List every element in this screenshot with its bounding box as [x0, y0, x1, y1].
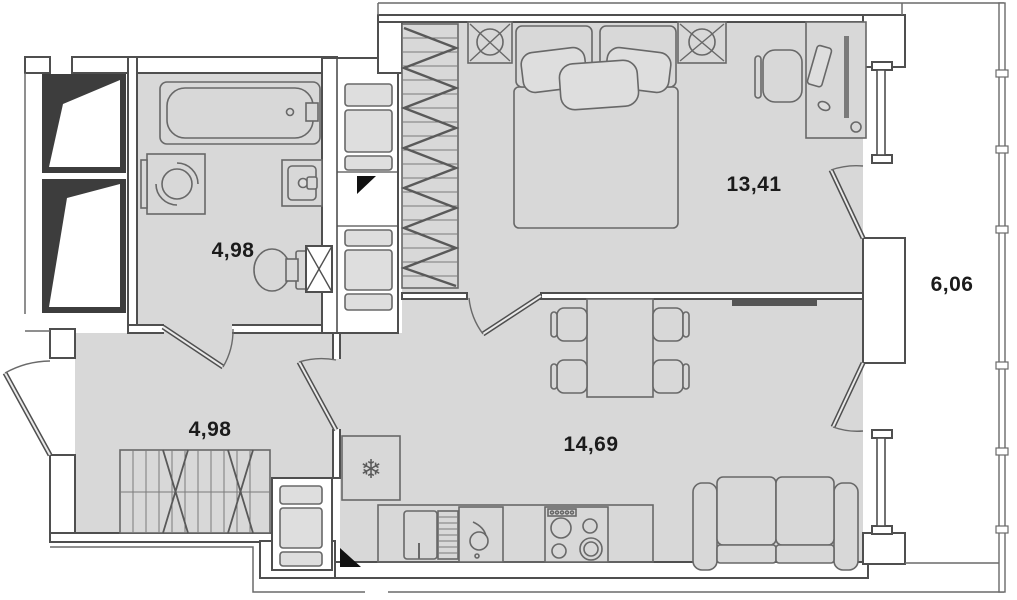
living-window: [872, 430, 892, 534]
sofa-arm-right: [834, 483, 858, 570]
glazing-mullion: [996, 70, 1008, 77]
pillow-center: [558, 59, 639, 110]
kitchen-cabinet: [404, 511, 437, 559]
glazing-mullion: [996, 362, 1008, 369]
room-label-hallway: 4,98: [189, 418, 232, 442]
room-label-bathroom: 4,98: [212, 239, 255, 263]
balcony-glazing: [996, 3, 1008, 592]
desk-monitor-bar: [844, 36, 849, 118]
entry-door: [5, 361, 50, 455]
sofa-cushion: [776, 477, 834, 545]
floor-plan-drawing: ❄: [0, 0, 1017, 600]
bathtub: [160, 82, 320, 144]
tv: [732, 300, 817, 306]
desk: [806, 22, 866, 138]
dishwasher: [438, 511, 458, 559]
glazing-mullion: [996, 146, 1008, 153]
glazing-mullion: [996, 448, 1008, 455]
glazing-mullion: [996, 226, 1008, 233]
chair-back: [755, 56, 761, 98]
dining-table: [587, 299, 653, 397]
glazing-mullion: [996, 526, 1008, 533]
bedroom-window: [872, 62, 892, 163]
hall-closet: [120, 450, 270, 533]
room-label-kitchen-living: 14,69: [563, 433, 618, 457]
shaft-blocks: [43, 75, 125, 312]
nightstand-right: [678, 22, 726, 63]
fridge: ❄: [342, 436, 400, 500]
wardrobe: [402, 24, 458, 288]
stove: [545, 507, 608, 562]
bathroom-sink: [282, 160, 322, 206]
toilet-bowl: [254, 249, 290, 291]
sink-faucet-icon: [299, 179, 308, 188]
sofa: [693, 477, 858, 570]
room-label-bedroom: 13,41: [726, 173, 781, 197]
room-label-balcony: 6,06: [931, 273, 974, 297]
sofa-arm-left: [693, 483, 717, 570]
vent-grille: [306, 246, 332, 292]
nightstand-left: [468, 22, 512, 63]
bathtub-faucet-icon: [306, 103, 318, 121]
washing-machine: [141, 154, 205, 214]
kitchen-sink: [459, 507, 503, 562]
fridge-snowflake-icon: ❄: [360, 454, 382, 484]
floor-plan: ❄: [0, 0, 1017, 600]
sofa-cushion: [717, 477, 776, 545]
